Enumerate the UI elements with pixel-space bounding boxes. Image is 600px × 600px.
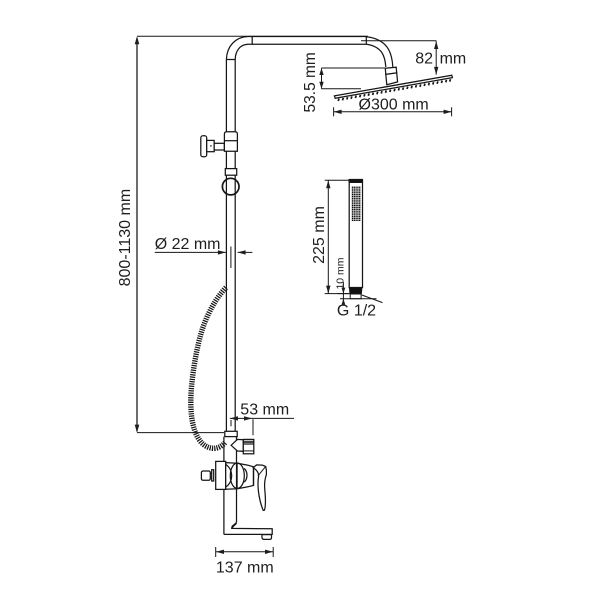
svg-text:10 mm: 10 mm xyxy=(335,257,347,289)
svg-text:82: 82 xyxy=(415,51,433,68)
svg-text:800-1130 mm: 800-1130 mm xyxy=(117,189,134,287)
svg-text:225 mm: 225 mm xyxy=(311,206,328,264)
svg-text:53 mm: 53 mm xyxy=(240,401,289,418)
svg-text:mm: mm xyxy=(440,51,467,68)
svg-text:G 1/2: G 1/2 xyxy=(337,303,376,320)
svg-text:Ø300 mm: Ø300 mm xyxy=(359,96,429,113)
svg-text:137 mm: 137 mm xyxy=(216,560,274,577)
svg-text:53.5 mm: 53.5 mm xyxy=(302,52,319,112)
svg-text:Ø 22 mm: Ø 22 mm xyxy=(155,236,221,253)
